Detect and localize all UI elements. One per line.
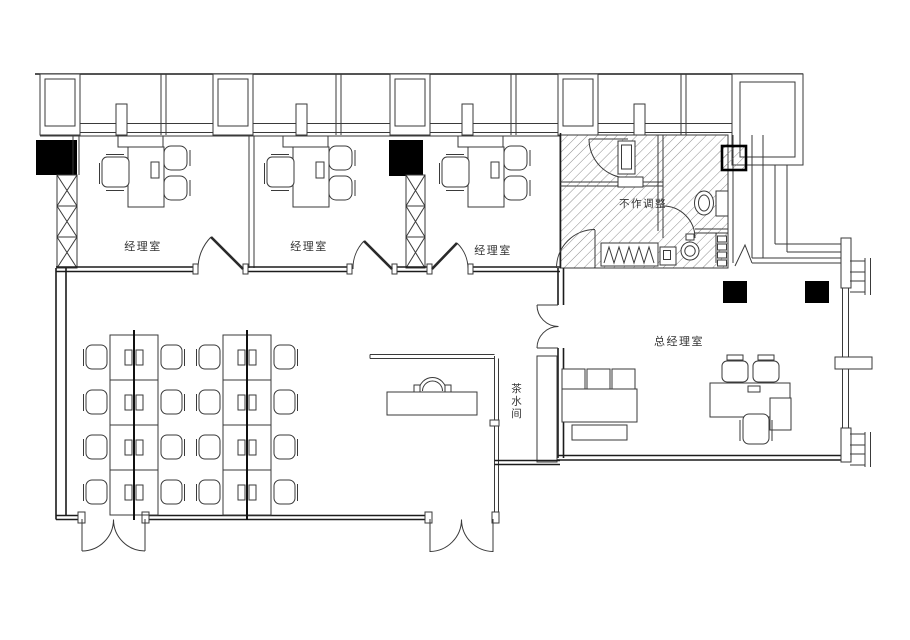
general-manager-office <box>537 238 872 467</box>
gm-sofa-set <box>562 369 637 440</box>
label-restricted-area: 不作调整 <box>611 196 675 211</box>
manager-office-2-furniture <box>265 136 356 207</box>
main-entrance-double-door <box>430 519 493 552</box>
label-manager-office-3: 经理室 <box>468 242 518 258</box>
reception-area <box>370 355 499 520</box>
label-manager-office-1: 经理室 <box>118 238 168 254</box>
left-double-door <box>82 519 145 551</box>
column-solid <box>805 281 829 303</box>
workstation-bank-2 <box>197 330 298 520</box>
small-cabinet <box>660 247 676 265</box>
tea-room-counter <box>537 356 557 462</box>
gm-double-door <box>537 305 559 348</box>
reception-chair <box>414 378 451 393</box>
south-wall <box>56 512 499 523</box>
manager-office-1-door <box>198 237 243 269</box>
label-general-manager-office: 总经理室 <box>648 333 710 349</box>
column-solid <box>36 140 77 175</box>
manager-offices-wall <box>56 264 560 274</box>
workstation-bank-1 <box>84 330 185 520</box>
floor-plan-svg <box>0 0 910 640</box>
column-solid <box>389 140 423 176</box>
left-wall-structure <box>36 135 79 520</box>
manager-office-1-furniture <box>100 136 191 207</box>
gm-office-entry-door <box>735 245 752 266</box>
floor-plan-canvas: 经理室 经理室 经理室 不作调整 总经理室 茶水间 <box>0 0 910 640</box>
label-tea-room: 茶水间 <box>509 383 524 421</box>
fan-coil-unit <box>601 243 658 266</box>
manager-office-3-furniture <box>440 136 531 207</box>
manager-office-2-door <box>353 241 392 269</box>
tea-room-structure <box>495 356 561 465</box>
gm-desk-set <box>710 355 791 444</box>
coffee-table <box>572 425 627 440</box>
reception-desk <box>387 392 477 415</box>
shaft-column <box>722 146 746 170</box>
column-solid <box>723 281 747 303</box>
manager-office-3-door <box>432 243 468 269</box>
label-manager-office-2: 经理室 <box>284 238 334 254</box>
